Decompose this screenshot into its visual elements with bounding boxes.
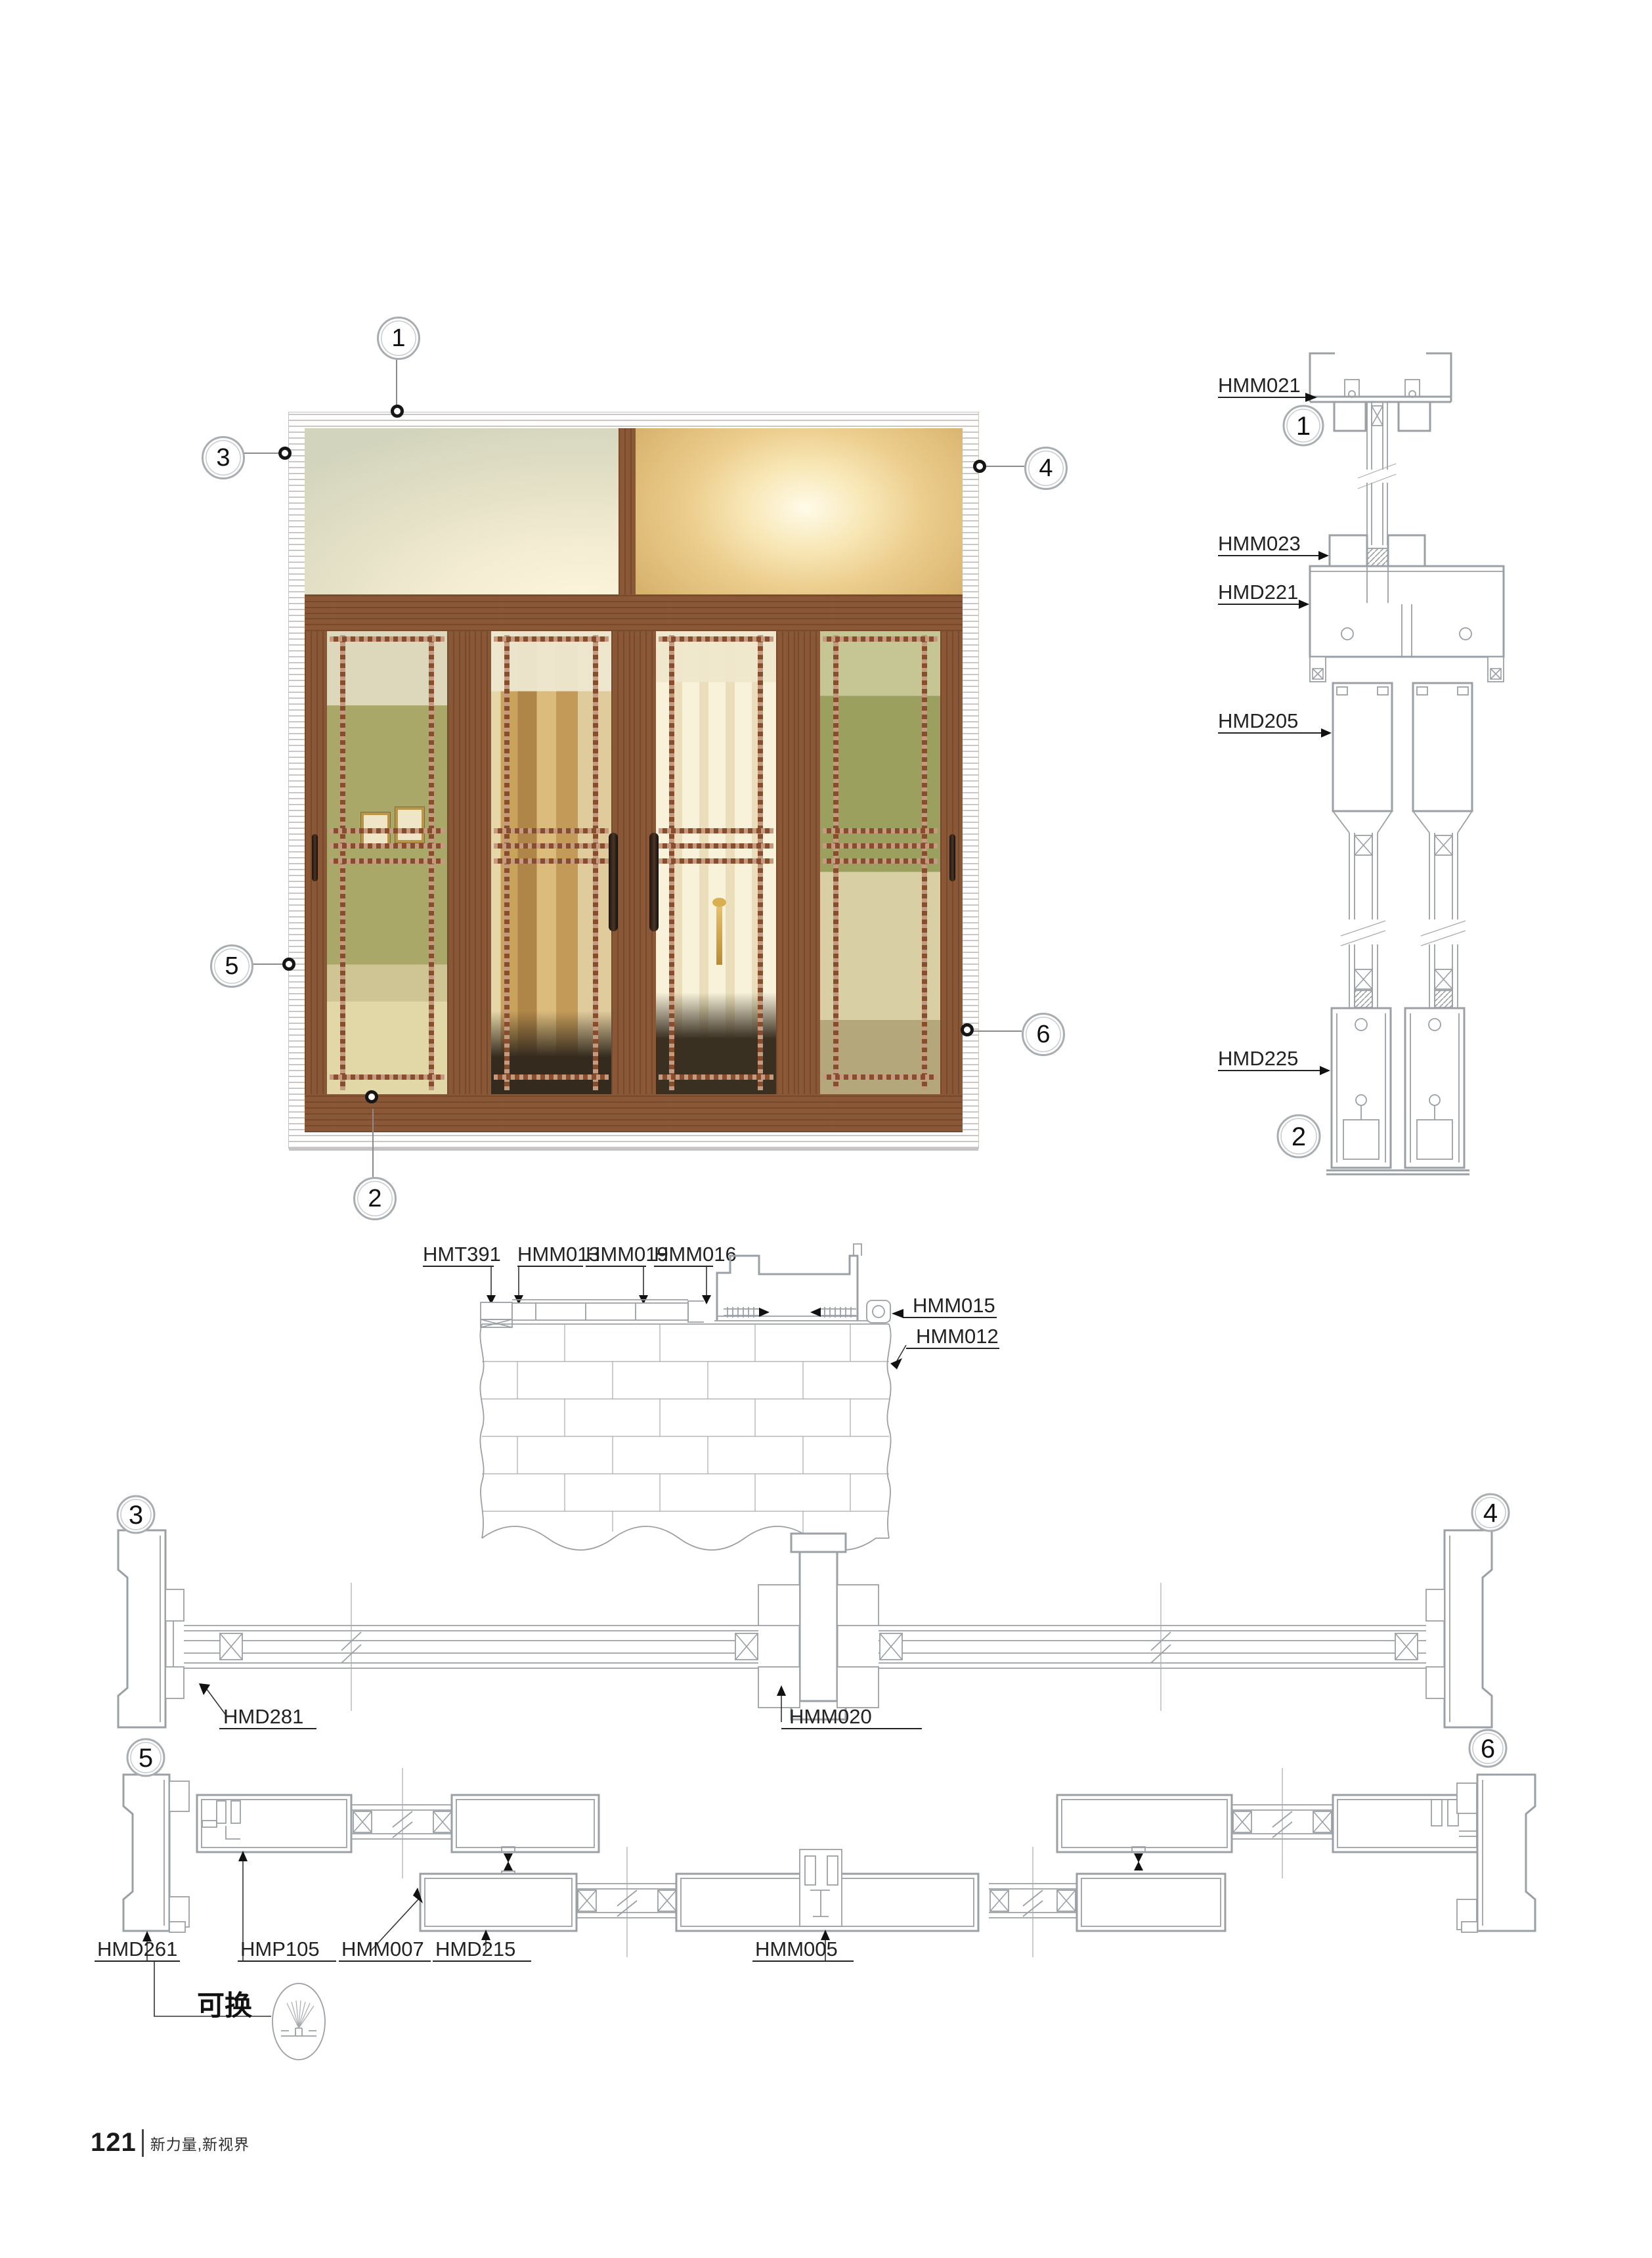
label-hmm016: HMM016 [654,1243,737,1266]
door-panel-3 [634,614,798,1132]
hmd205-panel-stiles [1333,683,1472,833]
upper-track-left-pair [197,1768,599,1878]
label-hmd221: HMD221 [1218,581,1298,604]
lattice-strip [330,858,445,864]
panel-rail [634,614,798,631]
lattice-strip [494,843,609,849]
lattice-strip [494,636,609,642]
lattice-strip [659,636,773,642]
leader-line [241,453,279,454]
label-hmm023: HMM023 [1218,532,1301,555]
replaceable-note: 可换 [154,1961,325,2060]
callout-1-label: 1 [391,324,405,353]
panel-stile [469,614,491,1132]
door-panel-4 [798,614,963,1132]
door-glass-1 [327,631,447,1094]
sliding-door-photo [289,412,978,1148]
door-handle-icon [312,834,318,881]
right-jamb [1426,1530,1492,1727]
panel-stile [798,614,820,1132]
catalog-page: 1 2 3 4 5 6 [0,0,1652,2258]
floor-line [1326,1170,1469,1174]
door-handle-icon [949,834,955,881]
lattice-strip [659,1074,773,1080]
label-hmd205: HMD205 [1218,709,1298,732]
transom-glazing [1334,402,1430,545]
callout-2-label: 2 [1292,1122,1306,1151]
label-hmd225: HMD225 [1218,1047,1298,1070]
plan-callout-5: 5 [127,1739,164,1776]
leader-line [973,1030,1022,1032]
callout-4: 4 [1024,447,1068,490]
label-hmm021: HMM021 [1218,374,1301,397]
callout-5: 5 [210,944,253,988]
replaceable-text: 可换 [197,1990,252,2021]
plan-section-bottom-drawing: HMD261 HMP105 HMM007 HMD215 HMM005 可换 [92,1727,1563,2069]
hmd221-head-track [1310,566,1504,682]
left-jamb-hmd281 [118,1530,184,1727]
upper-track-right-pair [1057,1768,1515,1878]
label-hmd281: HMD281 [223,1705,303,1728]
panel-rail [469,1094,634,1132]
hmd225-bottom-rails [1326,1008,1469,1174]
door-panel-1 [305,614,469,1132]
callout-3-label: 3 [216,444,230,472]
ceiling-channel-hmm021 [1310,353,1451,402]
lattice-strip [494,1074,609,1080]
transom-mullion [619,428,636,594]
anchor-dot [973,460,986,473]
hmm015-end-cap [867,1300,890,1323]
leader-line [396,356,397,405]
door-glazing-stacks [1341,833,1466,1008]
lattice-strip [494,858,609,864]
meeting-lock-hmm005 [800,1849,842,1926]
label-hmp105: HMP105 [240,1937,320,1960]
center-mullion-hmm020 [758,1534,879,1719]
callout-4-label: 4 [1483,1499,1498,1528]
label-hmm012: HMM012 [916,1325,999,1348]
lattice-strip [330,1074,445,1080]
panel-rail [634,1094,798,1132]
label-hmt391: HMT391 [423,1243,501,1266]
door-handle-icon [649,833,659,931]
panel-rail [305,1094,469,1132]
lattice-strip [659,843,773,849]
callout-1-label: 1 [1296,412,1311,441]
panel-stile [776,614,798,1132]
anchor-dot [391,405,404,418]
door-glass-2 [491,631,611,1094]
anchor-dot [282,958,295,971]
plan-callout-3: 3 [118,1496,154,1533]
lattice-strip [659,828,773,833]
callout-3: 3 [202,436,245,479]
lattice-strip [823,828,938,833]
panel-rail [469,614,634,631]
lattice-strip [330,843,445,849]
plan-callout-4: 4 [1472,1494,1509,1531]
panel-stile [447,614,469,1132]
brush-seal-icon [272,1983,325,2060]
lattice-strip [823,858,938,864]
lattice-strip [330,828,445,833]
transom-pane-right [636,428,963,594]
lattice-strip [494,828,609,833]
plan-section-top-drawing: HMD281 HMM020 3 4 [98,1491,1563,1754]
left-jamb-hmd261 [123,1775,189,1932]
lattice-strip [659,858,773,864]
label-hmm020: HMM020 [789,1705,872,1728]
detail-labels-right: HMM015 HMM012 [890,1294,999,1369]
section-callout-2: 2 [1278,1115,1320,1157]
panel-rail [798,1094,963,1132]
callout-5-label: 5 [139,1744,153,1773]
anchor-dot [961,1023,974,1036]
callout-4-label: 4 [1039,454,1053,483]
callout-6-label: 6 [1036,1021,1050,1049]
callout-2: 2 [353,1177,397,1220]
sliding-panels [305,614,963,1132]
candlestick-icon [716,907,722,965]
door-panel-2 [469,614,634,1132]
callout-6-label: 6 [1481,1735,1495,1763]
callout-3-label: 3 [129,1501,143,1530]
door-glass-3 [656,631,776,1094]
section-callout-1: 1 [1284,406,1323,445]
right-jamb [1457,1775,1535,1932]
transom-sill [305,594,963,614]
anchor-dot [278,447,292,460]
transom-pane-left [305,428,619,594]
picture-frame-icon [395,807,424,843]
door-handle-icon [609,833,618,931]
callout-6: 6 [1022,1013,1065,1056]
detail-labels-top: HMT391 HMM013 HMM019 HMM016 [423,1243,737,1304]
label-hmm005: HMM005 [755,1937,838,1960]
vertical-section-drawing: HMM021 HMM023 HMD221 HMD205 HMD225 1 2 [1202,342,1569,1189]
callout-1: 1 [377,317,420,360]
lattice-strip [330,636,445,642]
plan-callout-6: 6 [1469,1730,1506,1767]
callout-2-label: 2 [368,1185,381,1213]
panel-rail [305,614,469,631]
footer-divider [142,2129,144,2157]
label-hmm007: HMM007 [341,1937,424,1960]
footer-tagline: 新力量,新视界 [150,2132,250,2154]
lattice-strip [823,1074,938,1080]
label-hmd261: HMD261 [97,1937,177,1960]
door-glass-4 [820,631,940,1094]
page-number: 121 [91,2128,137,2158]
section-labels: HMM021 HMM023 HMD221 HMD205 HMD225 [1218,374,1332,1075]
anchor-dot [365,1090,378,1103]
label-hmm015: HMM015 [913,1294,995,1317]
lattice-strip [823,636,938,642]
leader-line [250,963,284,965]
panel-rail [798,614,963,631]
leader-line [372,1109,374,1177]
label-hmd215: HMD215 [435,1937,515,1960]
lattice-strip [823,843,938,849]
callout-5-label: 5 [225,952,238,981]
page-footer: 121 新力量,新视界 [91,2128,250,2158]
hmm023-clips [1330,535,1425,566]
